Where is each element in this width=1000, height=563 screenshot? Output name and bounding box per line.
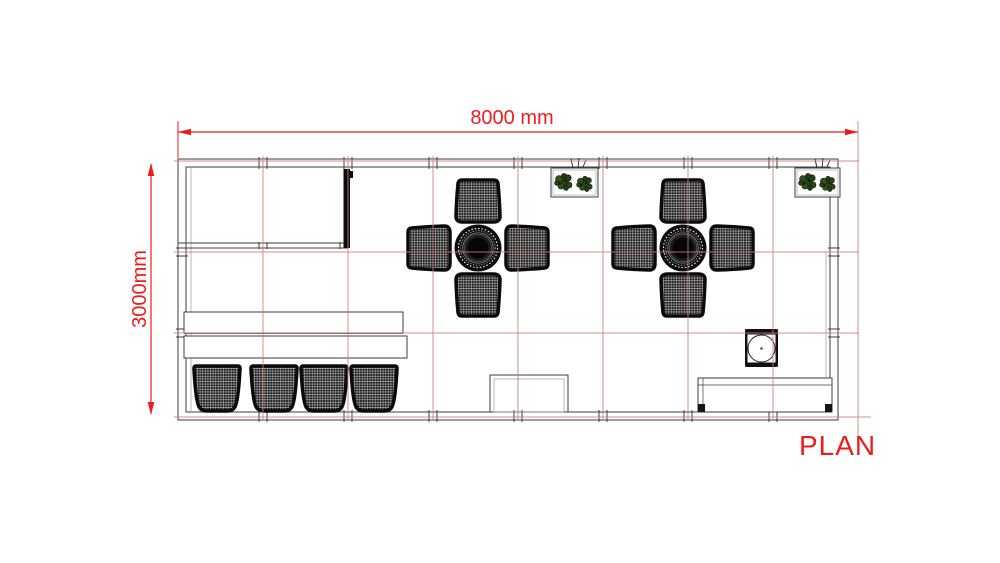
plan-title: PLAN (799, 430, 876, 461)
chair-left (408, 226, 450, 270)
chair-top (456, 180, 500, 222)
chair-top (661, 180, 705, 222)
sliding-door-panel (344, 169, 351, 248)
counter-top (184, 312, 403, 333)
chair-left (613, 226, 655, 270)
bar-stool (251, 366, 297, 411)
chair-bottom (661, 274, 705, 316)
floor-plan-page: 8000 mm 3000mm PLAN (0, 0, 1000, 563)
chair-right (711, 226, 753, 270)
round-table (660, 225, 707, 272)
floor-plan-canvas: 8000 mm 3000mm PLAN (0, 0, 1000, 563)
bench-seat (698, 378, 832, 412)
bench-foot (698, 404, 705, 412)
bench-foot (825, 404, 832, 412)
chair-bottom (456, 274, 500, 316)
height-dimension-label: 3000mm (129, 250, 151, 328)
drain-dot (760, 347, 763, 350)
door-handle (350, 171, 353, 178)
counter-base (184, 336, 407, 358)
width-dimension-label: 8000 mm (470, 107, 553, 129)
bar-stool (351, 366, 397, 411)
round-table (455, 225, 502, 272)
chair-right (506, 226, 548, 270)
bar-stool (194, 366, 240, 411)
bar-stool (301, 366, 347, 411)
